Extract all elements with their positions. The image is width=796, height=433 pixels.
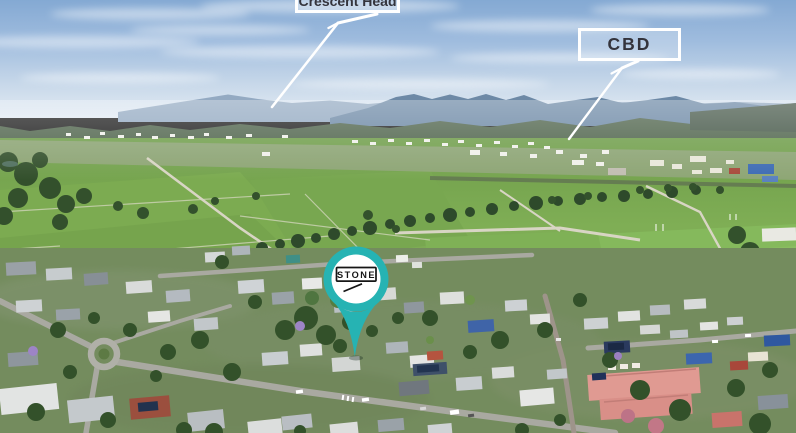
railway-embankment xyxy=(430,178,796,186)
tree-row xyxy=(240,185,701,257)
distant-town xyxy=(0,140,796,180)
mountain-range-near xyxy=(330,94,796,126)
house-roofs xyxy=(0,246,790,433)
field-trees xyxy=(113,183,766,307)
callout-cbd-label: CBD xyxy=(608,34,652,55)
pin-body xyxy=(324,247,389,357)
goal-posts xyxy=(656,214,736,231)
accent-trees xyxy=(28,291,664,433)
pink-roof-complex xyxy=(587,363,701,420)
cbd-arrow xyxy=(569,61,638,139)
country-roads xyxy=(147,158,722,270)
callout-cbd: CBD xyxy=(578,28,681,61)
forest-band xyxy=(0,114,796,154)
farmland xyxy=(0,138,796,314)
stone-map-pin: STONE xyxy=(324,247,389,361)
roundabout xyxy=(91,341,117,367)
farm-dam xyxy=(2,161,18,167)
stone-logo: STONE xyxy=(337,268,377,292)
callout-crescent-head-label: Crescent Head xyxy=(298,0,396,9)
mountain-range-far xyxy=(118,95,796,123)
stone-logo-text: STONE xyxy=(337,270,376,280)
cars xyxy=(296,260,751,418)
left-tree-mass xyxy=(0,152,92,230)
distant-buildings xyxy=(66,132,778,182)
suburb-trees xyxy=(27,255,778,433)
aerial-photo: STONE Crescent Head CBD xyxy=(0,0,796,433)
streets xyxy=(0,255,796,433)
callout-crescent-head: Crescent Head xyxy=(295,0,400,13)
stone-logo-tail xyxy=(344,284,363,292)
clubhouse-roof xyxy=(762,227,796,241)
crescent-head-arrow xyxy=(272,14,377,107)
aerial-photo-background xyxy=(0,0,796,433)
road-markings xyxy=(342,395,355,402)
residential-area xyxy=(0,248,796,433)
sports-field xyxy=(598,224,796,306)
pin-shadow xyxy=(349,356,363,361)
annotation-overlay: STONE xyxy=(0,0,796,433)
forest-right xyxy=(690,103,796,132)
pin-logo-disc xyxy=(332,255,381,304)
